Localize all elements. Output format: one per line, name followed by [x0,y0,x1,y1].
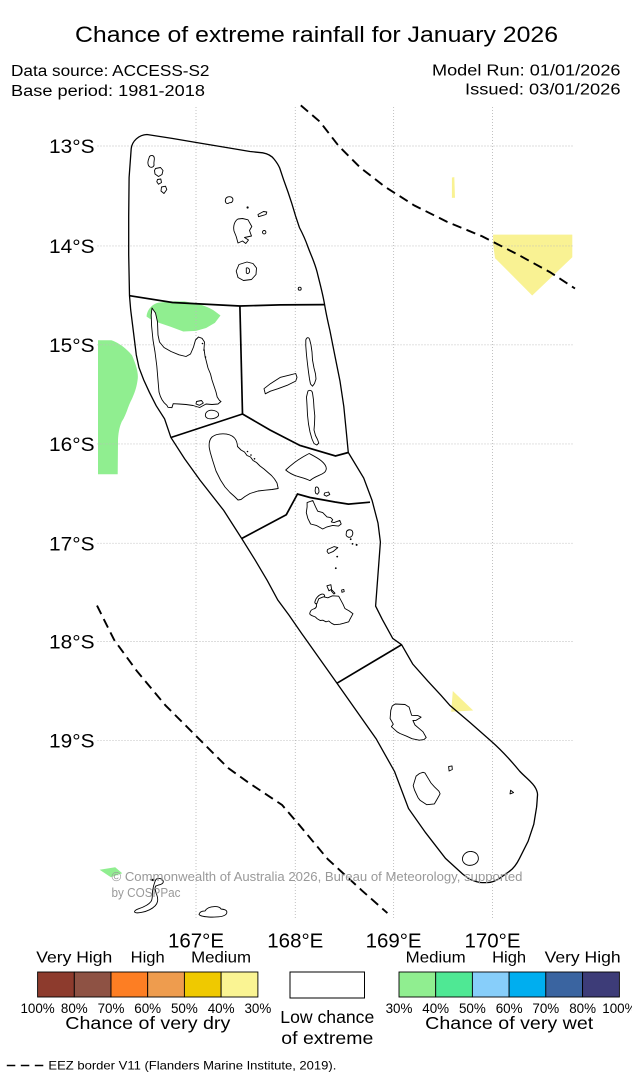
svg-text:Chance of very dry: Chance of very dry [65,1013,230,1033]
svg-text:Medium: Medium [406,950,466,967]
svg-text:EEZ border V11 (Flanders Marin: EEZ border V11 (Flanders Marine Institut… [48,1059,336,1073]
svg-text:Data source: ACCESS-S2: Data source: ACCESS-S2 [11,63,210,80]
svg-text:Model Run: 01/01/2026: Model Run: 01/01/2026 [432,63,621,80]
svg-text:19°S: 19°S [49,732,95,753]
svg-text:High: High [131,950,165,967]
svg-text:Medium: Medium [191,950,251,967]
svg-text:17°S: 17°S [49,534,95,555]
svg-text:15°S: 15°S [49,336,95,357]
svg-text:100%: 100% [20,1001,54,1016]
svg-text:Low chance: Low chance [280,1007,374,1027]
svg-text:Chance of very wet: Chance of very wet [425,1013,593,1033]
svg-text:High: High [492,950,526,967]
svg-text:by COSPPac: by COSPPac [112,886,181,900]
svg-text:30%: 30% [386,1001,413,1016]
svg-text:Very High: Very High [545,950,621,967]
svg-text:Chance of extreme rainfall for: Chance of extreme rainfall for January 2… [75,22,558,47]
svg-text:18°S: 18°S [49,633,95,654]
svg-text:© Commonwealth of Australia 20: © Commonwealth of Australia 2026, Bureau… [112,870,523,884]
svg-text:of extreme: of extreme [281,1028,373,1048]
svg-text:Base period: 1981-2018: Base period: 1981-2018 [11,83,205,100]
svg-text:16°S: 16°S [49,435,95,456]
svg-text:14°S: 14°S [49,237,95,258]
svg-text:168°E: 168°E [267,931,323,953]
svg-text:30%: 30% [244,1001,271,1016]
svg-text:13°S: 13°S [49,137,95,158]
svg-text:100%: 100% [602,1001,632,1016]
svg-text:Issued: 03/01/2026: Issued: 03/01/2026 [465,82,621,99]
svg-text:Very High: Very High [36,950,112,967]
